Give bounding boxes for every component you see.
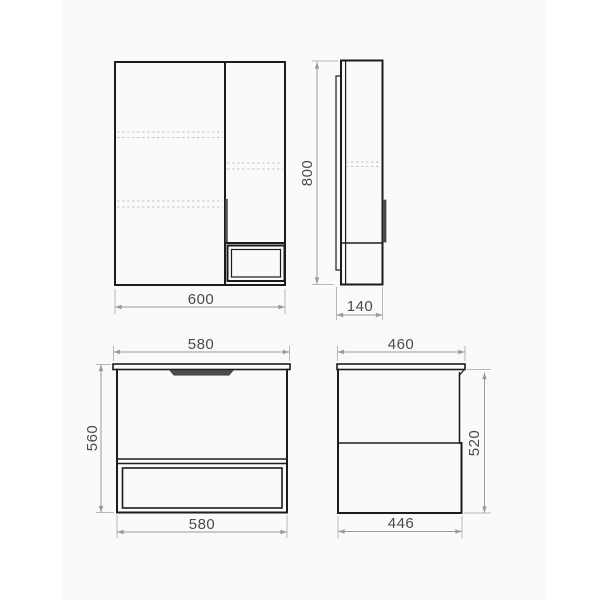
dimension-label: 446	[388, 515, 415, 532]
dimension-label: 140	[347, 298, 374, 315]
technical-drawing-page: 600 800 140 580	[0, 0, 600, 600]
drawing-canvas	[63, 0, 545, 600]
dimension-label: 800	[299, 160, 316, 187]
handle-notch	[170, 371, 233, 376]
furniture-dimension-drawing: 600 800 140 580	[0, 0, 600, 600]
dimension-label: 520	[466, 430, 483, 457]
dimension-label: 460	[388, 336, 415, 353]
dimension-label: 600	[188, 291, 215, 308]
door-handle	[383, 200, 386, 242]
dimension-label: 560	[84, 425, 101, 452]
dimension-label: 580	[189, 516, 216, 533]
dimension-label: 580	[188, 336, 215, 353]
